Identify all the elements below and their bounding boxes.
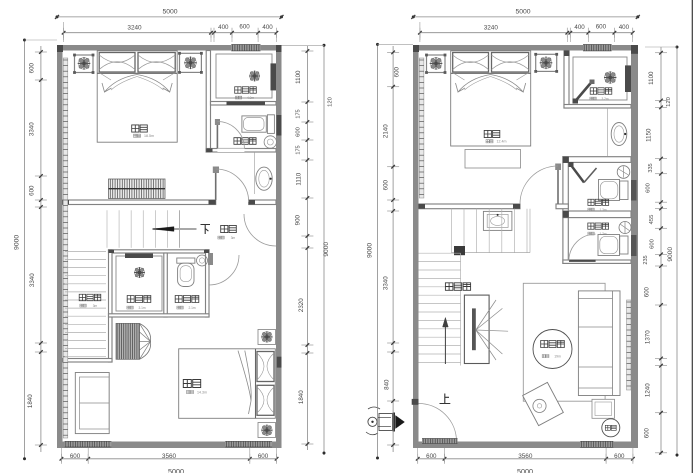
svg-text:3240: 3240 xyxy=(127,24,142,31)
svg-text:235: 235 xyxy=(643,255,649,264)
svg-text:9000: 9000 xyxy=(14,235,21,250)
svg-text:3340: 3340 xyxy=(29,273,36,287)
svg-text:600: 600 xyxy=(394,66,401,77)
svg-text:1100: 1100 xyxy=(648,71,655,85)
svg-text:1240: 1240 xyxy=(645,383,652,397)
svg-text:3560: 3560 xyxy=(162,453,177,460)
svg-text:600: 600 xyxy=(426,453,437,460)
svg-text:600: 600 xyxy=(29,62,36,73)
svg-text:600: 600 xyxy=(596,24,607,31)
svg-text:400: 400 xyxy=(262,24,273,31)
svg-text:9000: 9000 xyxy=(367,243,374,258)
svg-text:3340: 3340 xyxy=(383,276,390,290)
svg-text:5000: 5000 xyxy=(168,467,184,473)
svg-text:5000: 5000 xyxy=(162,9,177,16)
svg-text:1840: 1840 xyxy=(27,394,34,408)
svg-text:3340: 3340 xyxy=(29,122,36,136)
svg-text:9000: 9000 xyxy=(323,242,330,257)
svg-text:600: 600 xyxy=(645,286,651,297)
svg-text:120: 120 xyxy=(328,97,334,107)
svg-text:1150: 1150 xyxy=(646,128,653,142)
svg-text:1.3m: 1.3m xyxy=(599,208,606,212)
svg-text:2320: 2320 xyxy=(298,298,305,312)
svg-text:1100: 1100 xyxy=(295,70,302,84)
svg-text:600: 600 xyxy=(239,24,250,31)
svg-text:12.4m: 12.4m xyxy=(497,140,507,144)
svg-text:3m: 3m xyxy=(231,236,236,240)
svg-text:4.0m: 4.0m xyxy=(247,96,254,100)
svg-text:1110: 1110 xyxy=(296,172,303,185)
svg-text:5000: 5000 xyxy=(517,467,533,473)
svg-text:600: 600 xyxy=(29,185,36,196)
svg-text:840: 840 xyxy=(384,379,391,390)
svg-text:600: 600 xyxy=(296,127,302,137)
svg-text:600: 600 xyxy=(70,453,81,460)
svg-text:18.5m: 18.5m xyxy=(144,134,154,138)
svg-text:2.1m: 2.1m xyxy=(188,306,195,310)
svg-text:3m: 3m xyxy=(93,304,98,308)
svg-text:600: 600 xyxy=(383,179,390,190)
svg-text:1840: 1840 xyxy=(298,390,305,404)
svg-text:455: 455 xyxy=(649,215,655,225)
svg-text:600: 600 xyxy=(258,453,269,460)
svg-text:900: 900 xyxy=(295,214,302,225)
svg-text:19m: 19m xyxy=(554,354,561,358)
svg-text:600: 600 xyxy=(646,183,652,193)
svg-text:600: 600 xyxy=(614,453,625,460)
svg-text:175: 175 xyxy=(296,109,302,118)
svg-text:14.3m: 14.3m xyxy=(197,390,207,394)
svg-text:175: 175 xyxy=(296,145,302,154)
svg-text:400: 400 xyxy=(574,24,585,31)
svg-text:400: 400 xyxy=(218,24,229,31)
svg-text:600: 600 xyxy=(645,427,651,438)
svg-text:120: 120 xyxy=(666,97,672,107)
svg-text:600: 600 xyxy=(650,239,656,249)
svg-text:335: 335 xyxy=(648,163,654,172)
svg-text:2140: 2140 xyxy=(383,124,390,138)
svg-text:5000: 5000 xyxy=(515,9,530,16)
svg-text:1370: 1370 xyxy=(645,330,652,344)
svg-text:3.1m: 3.1m xyxy=(138,306,145,310)
svg-text:400: 400 xyxy=(619,24,630,31)
svg-text:3560: 3560 xyxy=(518,453,533,460)
svg-text:9000: 9000 xyxy=(667,247,674,262)
svg-text:3240: 3240 xyxy=(484,24,499,31)
svg-text:3.2m: 3.2m xyxy=(601,97,608,101)
